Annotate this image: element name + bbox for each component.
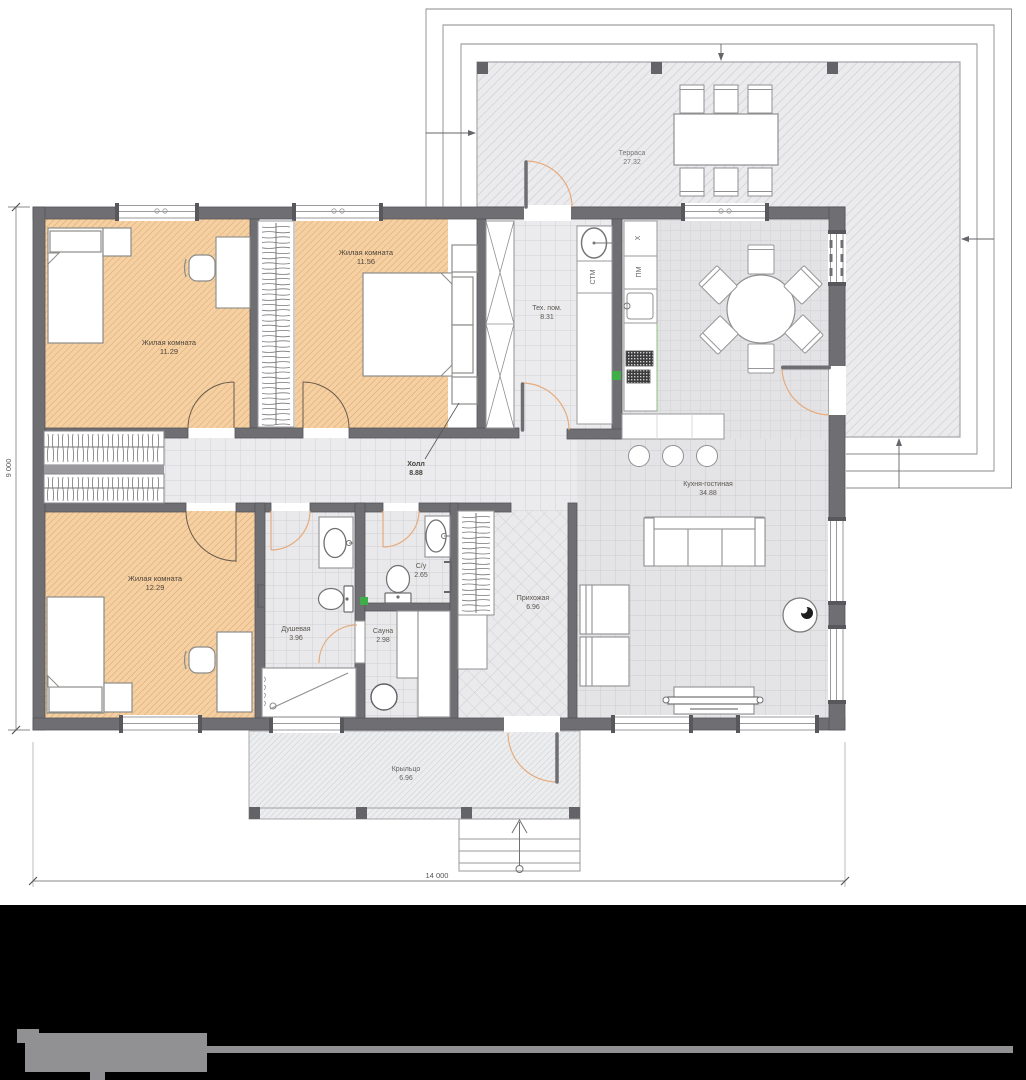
svg-text:3.96: 3.96 (289, 635, 303, 642)
svg-text:Холл: Холл (407, 461, 425, 468)
svg-text:12.29: 12.29 (146, 583, 165, 592)
svg-text:8.88: 8.88 (409, 470, 423, 477)
svg-text:С/у: С/у (416, 563, 427, 570)
svg-text:27.32: 27.32 (623, 159, 641, 166)
svg-text:9 000: 9 000 (4, 459, 13, 478)
svg-text:2.98: 2.98 (376, 637, 390, 644)
svg-text:Прихожая: Прихожая (517, 595, 550, 602)
svg-text:Жилая комната: Жилая комната (128, 574, 183, 583)
svg-text:6.96: 6.96 (399, 775, 413, 782)
svg-text:Жилая комната: Жилая комната (339, 248, 394, 257)
svg-text:14 000: 14 000 (426, 871, 449, 880)
svg-text:11.56: 11.56 (357, 257, 375, 266)
svg-text:Крыльцо: Крыльцо (392, 766, 421, 773)
svg-text:Кухня-гостиная: Кухня-гостиная (683, 481, 733, 488)
svg-text:8.31: 8.31 (540, 314, 554, 321)
svg-text:Терраса: Терраса (619, 150, 646, 157)
svg-text:2.65: 2.65 (414, 572, 428, 579)
svg-text:Сауна: Сауна (373, 628, 393, 635)
svg-text:11.29: 11.29 (160, 347, 178, 356)
svg-text:X: X (635, 235, 642, 240)
svg-text:6.96: 6.96 (526, 604, 540, 611)
svg-text:ПМ: ПМ (636, 266, 643, 277)
svg-text:СТМ: СТМ (590, 269, 597, 284)
svg-text:Тех. пом.: Тех. пом. (532, 305, 562, 312)
svg-text:Жилая комната: Жилая комната (142, 338, 197, 347)
svg-text:34.88: 34.88 (699, 490, 717, 497)
svg-text:Душевая: Душевая (281, 626, 310, 633)
